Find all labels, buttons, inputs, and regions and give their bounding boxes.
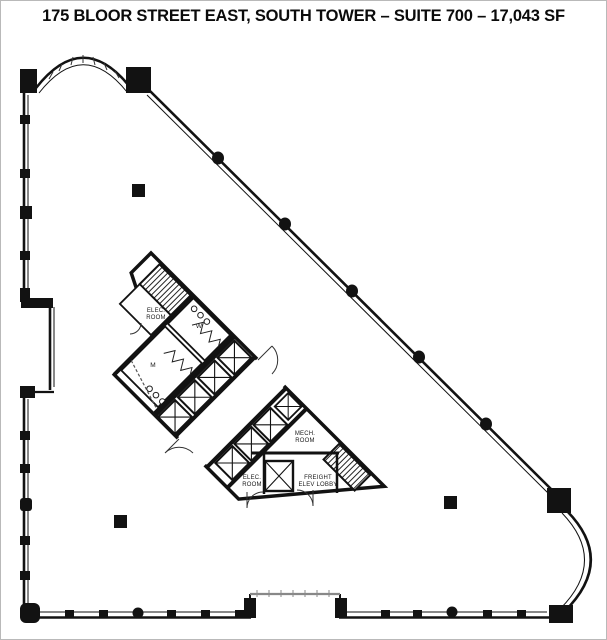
- freight-elevator: [265, 461, 293, 491]
- diagonal-column: [346, 285, 358, 298]
- mech-room-label: MECH.: [295, 431, 315, 437]
- interior-column: [114, 515, 127, 528]
- floor-plan-page: 175 BLOOR STREET EAST, SOUTH TOWER – SUI…: [0, 0, 607, 640]
- elec-room-upper-label2: ROOM: [146, 315, 165, 321]
- elec-room-upper-label: ELEC.: [147, 308, 165, 314]
- recess-jamb-left: [244, 598, 256, 618]
- recess-jamb-right: [335, 598, 347, 618]
- diagonal-column: [413, 351, 425, 364]
- curved-window-bay: [560, 511, 591, 612]
- freight-lobby-label2: ELEV LOBBY: [298, 482, 337, 488]
- washroom-w-label: W: [196, 323, 203, 330]
- perimeter-walls: [24, 55, 591, 618]
- corner-column-southeast: [549, 605, 573, 623]
- elec-room-lower-label2: ROOM: [242, 482, 261, 488]
- freight-lobby-label: FREIGHT: [304, 475, 332, 481]
- round-column: [133, 608, 144, 619]
- floor-plan: ELEC. ROOM W M MECH. ROOM ELEC. ROOM FRE…: [1, 1, 606, 639]
- diagonal-column: [480, 418, 492, 431]
- round-column: [447, 607, 458, 618]
- mech-room-label2: ROOM: [295, 438, 314, 444]
- washroom-m-label: M: [150, 362, 155, 369]
- structural-columns: [20, 67, 573, 623]
- left-wall-jog-lower: [20, 386, 35, 398]
- corner-column-southwest: [20, 603, 40, 623]
- interior-column: [132, 184, 145, 197]
- arch-column-left: [20, 69, 37, 93]
- recessed-bay: [250, 590, 340, 618]
- elec-room-lower-label: ELEC.: [243, 475, 261, 481]
- diagonal-column: [212, 152, 224, 165]
- arch-column-right: [126, 67, 151, 93]
- corner-column-east: [547, 488, 571, 513]
- arched-window-bay: [36, 55, 130, 93]
- interior-column: [444, 496, 457, 509]
- diagonal-column: [279, 218, 291, 231]
